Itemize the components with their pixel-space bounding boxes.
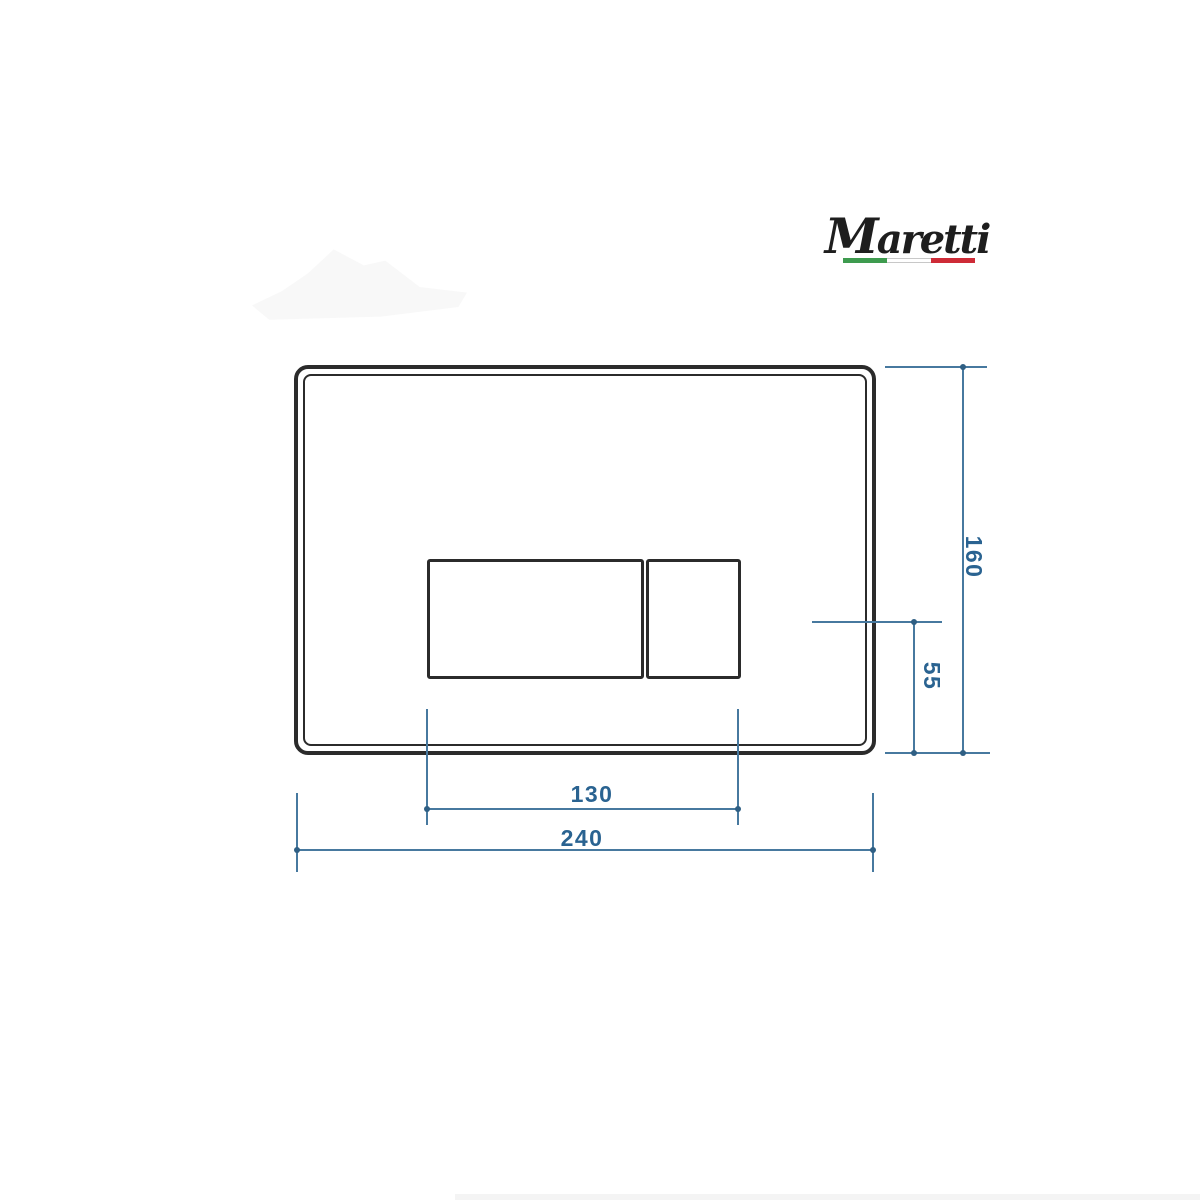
dim-node-dot [870, 847, 876, 853]
dim-240-extension-left [296, 793, 298, 872]
dim-label-button-axis-offset: 55 [917, 636, 947, 716]
dim-label-buttons-width: 130 [542, 779, 642, 805]
dim-node-dot [911, 619, 917, 625]
dim-label-plate-width: 240 [532, 823, 632, 849]
photo-watermark-ghost [252, 243, 467, 323]
brand-name: Maretti [812, 214, 1002, 262]
bottom-edge-strip [455, 1194, 1200, 1200]
dim-160-extension-bottom [885, 752, 990, 754]
small-flush-button [646, 559, 741, 679]
dim-node-dot [960, 750, 966, 756]
dim-node-dot [294, 847, 300, 853]
dim-node-dot [911, 750, 917, 756]
flag-red-stripe [931, 258, 975, 263]
dim-label-plate-height: 160 [959, 517, 989, 597]
dim-240-extension-right [872, 793, 874, 872]
dim-130-line [427, 808, 739, 810]
large-flush-button [427, 559, 644, 679]
dim-node-dot [960, 364, 966, 370]
brand-logo: Maretti [812, 214, 1002, 272]
dim-55-line [913, 621, 915, 754]
dim-node-dot [735, 806, 741, 812]
dim-55-extension-top [812, 621, 942, 623]
dim-160-extension-top [885, 366, 987, 368]
dim-node-dot [424, 806, 430, 812]
italian-flag-icon [843, 258, 975, 263]
flag-white-stripe [887, 258, 931, 263]
flag-green-stripe [843, 258, 887, 263]
drawing-canvas: Maretti 160 55 130 240 [0, 0, 1200, 1200]
